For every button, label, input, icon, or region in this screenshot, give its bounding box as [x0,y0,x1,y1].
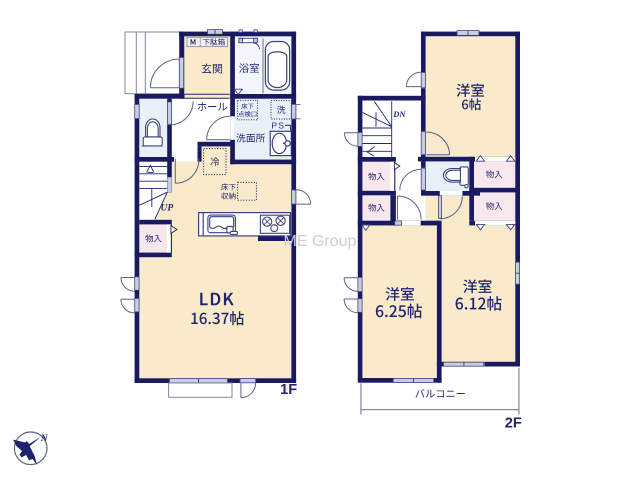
svg-text:1F: 1F [280,382,297,398]
svg-text:DN: DN [392,109,406,119]
svg-text:UP: UP [161,204,174,214]
svg-text:PS: PS [272,121,286,131]
svg-text:ME Group: ME Group [284,233,357,250]
svg-text:N: N [40,434,49,444]
svg-text:2F: 2F [505,415,522,431]
